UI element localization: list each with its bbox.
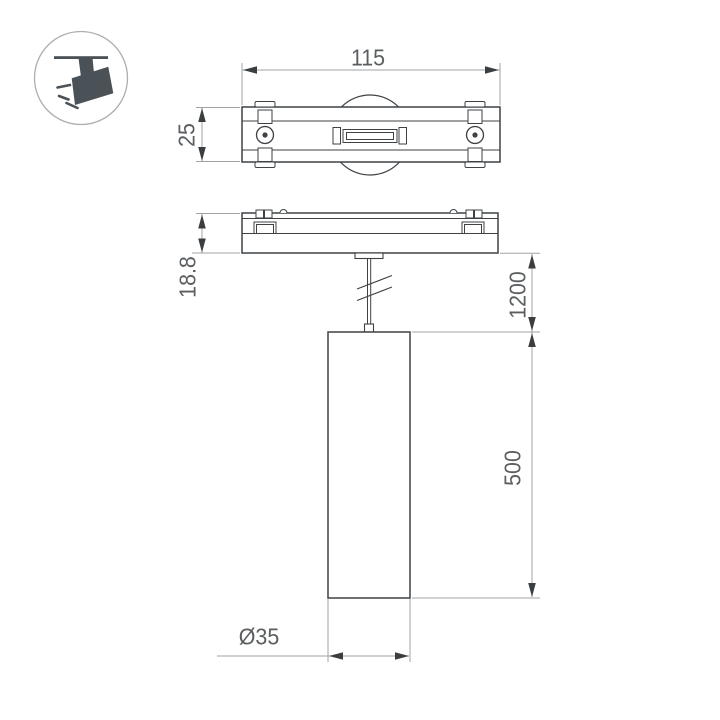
screw-bump-left [280,210,287,213]
contact-slot [333,128,407,145]
dim-body-length-label: 500 [502,450,525,486]
suspension-cable [368,259,371,325]
side-view [242,210,498,332]
screw-left [257,127,274,144]
top-view [242,95,500,175]
drawing-canvas [0,0,720,720]
screw-right [467,127,484,144]
pendant-cylinder [328,332,410,598]
cylinder-body [328,332,410,598]
screw-bump-right [450,210,457,213]
dim-track-depth-label: 25 [176,123,199,147]
cable-mount-block [355,253,383,259]
dim-adapter-height-label: 18.8 [177,256,200,298]
dimension-drawing: 115 25 18.8 1200 500 Ø35 [0,0,720,720]
dim-diameter-label: Ø35 [239,626,279,649]
dim-track-width-label: 115 [351,47,385,70]
cable-connector [365,324,374,332]
cable-break-symbol [357,276,392,301]
dim-suspension-label: 1200 [507,271,530,319]
track-spotlight-icon [35,32,128,125]
